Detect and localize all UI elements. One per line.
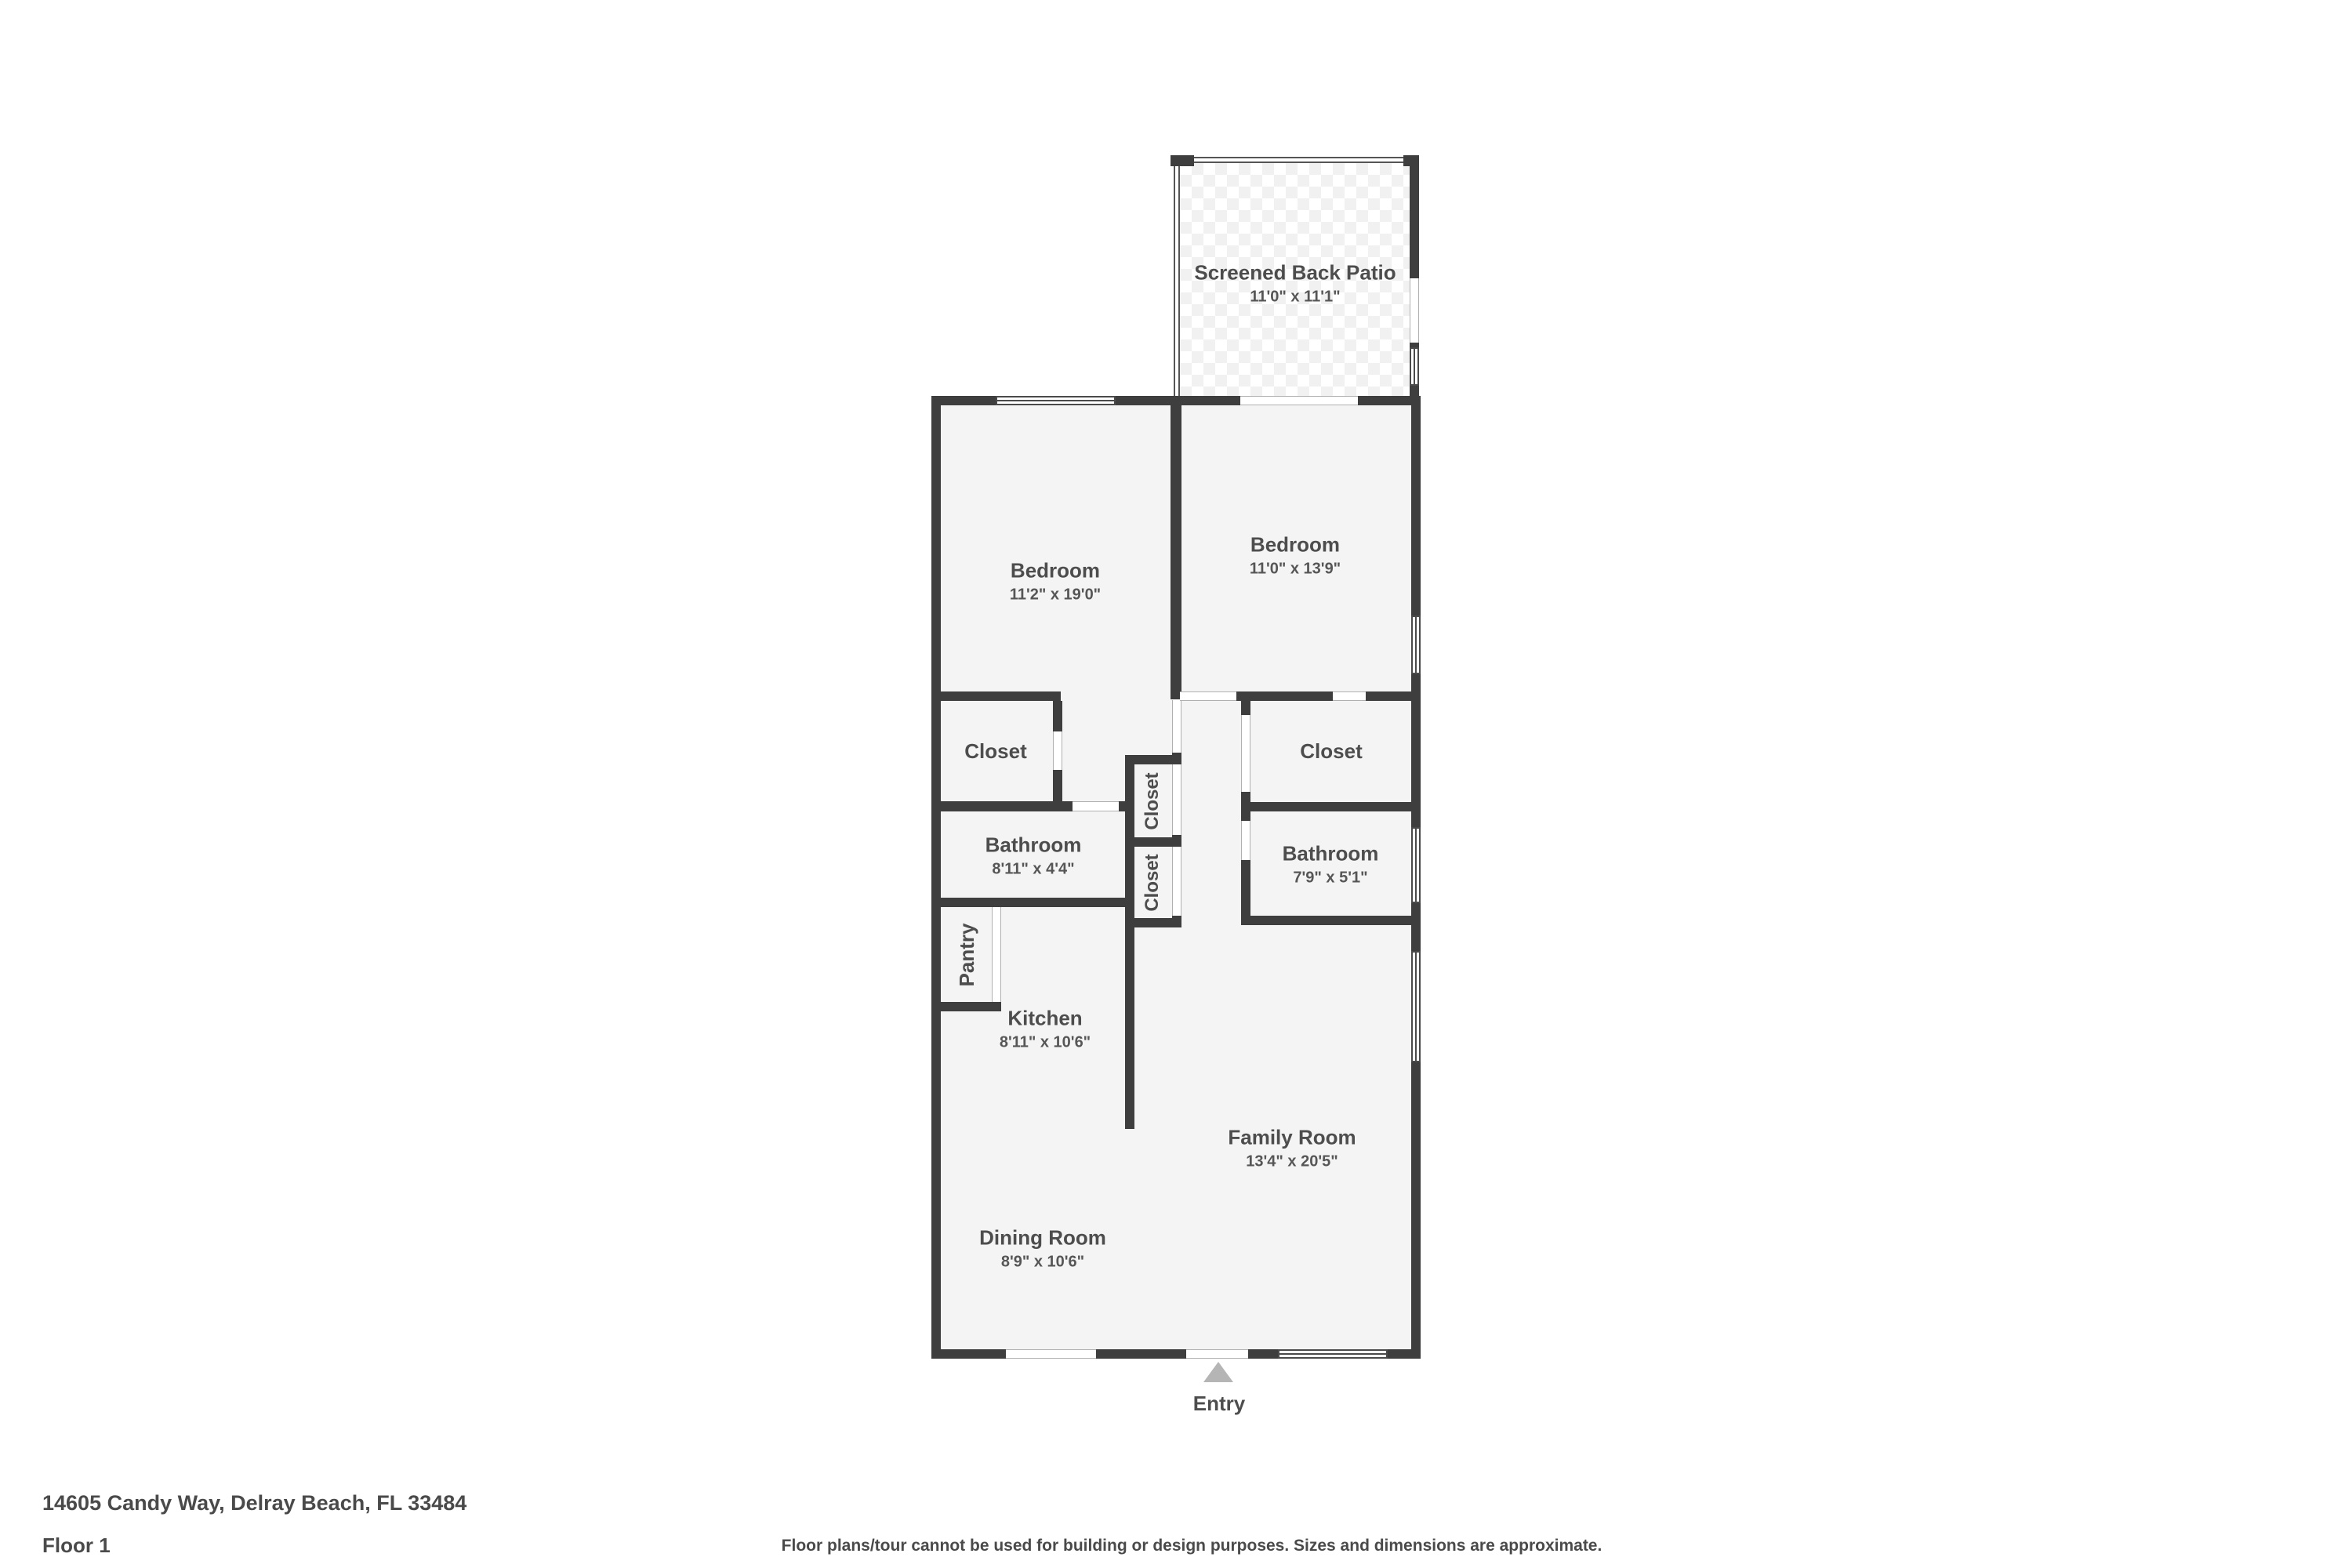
bedroom-window xyxy=(996,396,1116,405)
room-label-family-room: Family Room 13'4" x 20'5" xyxy=(1228,1124,1356,1171)
room-label-kitchen: Kitchen 8'11" x 10'6" xyxy=(1000,1005,1091,1052)
room-dims: 11'2" x 19'0" xyxy=(1010,585,1101,604)
bathroom-wall xyxy=(1241,860,1250,916)
closet-door xyxy=(1053,731,1062,770)
bathroom-window xyxy=(1411,827,1421,903)
room-label-closet-right: Closet xyxy=(1300,739,1362,764)
room-label-bathroom-left: Bathroom 8'11" x 4'4" xyxy=(985,832,1082,879)
pantry-bottom-wall xyxy=(931,1002,1001,1011)
room-name: Closet xyxy=(1141,854,1164,911)
hall-closet-wall xyxy=(1172,753,1181,764)
closet-door xyxy=(1241,715,1250,792)
closet-bottom-wall xyxy=(1250,802,1421,811)
room-name: Screened Back Patio xyxy=(1194,260,1396,285)
bedroom-window xyxy=(1411,615,1421,674)
family-room-sliding-window xyxy=(1278,1349,1388,1359)
room-name: Kitchen xyxy=(1000,1005,1091,1031)
entry-label: Entry xyxy=(1193,1391,1245,1417)
room-dims: 8'11" x 10'6" xyxy=(1000,1033,1091,1052)
exterior-wall-bottom xyxy=(931,1349,1006,1359)
patio-corner-block xyxy=(1171,155,1194,166)
dining-room-opening xyxy=(1006,1349,1096,1359)
bathroom-bottom-wall xyxy=(931,898,1134,907)
hall-closet-wall xyxy=(1172,835,1181,847)
room-dims: 11'0" x 11'1" xyxy=(1194,287,1396,307)
room-dims: 8'9" x 10'6" xyxy=(979,1252,1106,1272)
exterior-wall-top xyxy=(931,396,996,405)
exterior-wall-right xyxy=(1411,396,1421,615)
closet-sliding-door xyxy=(1333,691,1366,701)
exterior-wall-bottom xyxy=(1248,1349,1278,1359)
bedroom-south-wall xyxy=(1236,691,1333,701)
bedroom-door xyxy=(1180,691,1236,701)
room-name: Closet xyxy=(1141,772,1164,829)
room-dims: 8'11" x 4'4" xyxy=(985,859,1082,879)
room-name: Closet xyxy=(964,739,1026,764)
patio-screen-opening xyxy=(1410,278,1419,343)
room-name: Dining Room xyxy=(979,1225,1106,1250)
patio-window xyxy=(1410,347,1419,386)
exterior-wall-right xyxy=(1411,1062,1421,1359)
hall-closet-door xyxy=(1172,764,1181,835)
room-dims: 11'0" x 13'9" xyxy=(1250,559,1341,579)
room-label-bedroom-left: Bedroom 11'2" x 19'0" xyxy=(1010,557,1101,604)
room-dims: 7'9" x 5'1" xyxy=(1283,868,1379,887)
address-text: 14605 Candy Way, Delray Beach, FL 33484 xyxy=(42,1491,466,1515)
patio-screen-wall-top xyxy=(1178,157,1403,163)
room-label-screened-back-patio: Screened Back Patio 11'0" x 11'1" xyxy=(1194,260,1396,307)
hall-closet-wall xyxy=(1172,916,1181,927)
exterior-wall-right xyxy=(1411,903,1421,951)
closet-wall xyxy=(1053,701,1062,731)
hall-closet-door xyxy=(1172,847,1181,916)
room-label-closet-hall-lower: Closet xyxy=(1141,854,1164,911)
room-label-dining-room: Dining Room 8'9" x 10'6" xyxy=(979,1225,1106,1272)
bedroom-divider-wall xyxy=(1171,396,1181,699)
room-name: Closet xyxy=(1300,739,1362,764)
floor-plan-page: Screened Back Patio 11'0" x 11'1" Bedroo… xyxy=(0,0,2352,1568)
patio-wall-right xyxy=(1410,163,1419,278)
room-label-closet-left: Closet xyxy=(964,739,1026,764)
room-name: Bathroom xyxy=(1283,840,1379,866)
exterior-wall-bottom xyxy=(1388,1349,1421,1359)
room-label-pantry: Pantry xyxy=(954,924,980,987)
entry-arrow-icon xyxy=(1203,1362,1233,1382)
patio-sliding-door xyxy=(1240,396,1358,405)
bathroom-bottom-wall xyxy=(1241,916,1421,925)
room-name: Family Room xyxy=(1228,1124,1356,1150)
kitchen-wall xyxy=(1125,927,1134,1129)
room-dims: 13'4" x 20'5" xyxy=(1228,1152,1356,1171)
pantry-door xyxy=(992,907,1001,1002)
room-label-bedroom-right: Bedroom 11'0" x 13'9" xyxy=(1250,532,1341,579)
closet-wall xyxy=(1053,770,1062,801)
patio-screen-wall-left xyxy=(1174,166,1180,396)
entry-text: Entry xyxy=(1193,1391,1245,1417)
bedroom-south-wall xyxy=(938,691,1061,701)
bathroom-door xyxy=(1241,821,1250,860)
exterior-wall-bottom xyxy=(1096,1349,1186,1359)
bedroom-south-wall xyxy=(1366,691,1421,701)
room-label-bathroom-right: Bathroom 7'9" x 5'1" xyxy=(1283,840,1379,887)
room-name: Pantry xyxy=(954,924,980,987)
hall-opening xyxy=(1172,700,1181,753)
room-label-closet-hall-upper: Closet xyxy=(1141,772,1164,829)
room-name: Bedroom xyxy=(1010,557,1101,583)
disclaimer-text: Floor plans/tour cannot be used for buil… xyxy=(782,1537,1602,1555)
bathroom-top-wall xyxy=(931,801,1073,811)
closet-wall xyxy=(1241,701,1250,715)
closet-wall xyxy=(1241,792,1250,821)
family-room-window xyxy=(1411,951,1421,1062)
bathroom-door xyxy=(1073,801,1119,811)
exterior-wall-left xyxy=(931,396,941,1359)
entry-door-opening xyxy=(1186,1349,1248,1359)
room-name: Bedroom xyxy=(1250,532,1341,557)
room-name: Bathroom xyxy=(985,832,1082,858)
floor-number-text: Floor 1 xyxy=(42,1534,111,1558)
